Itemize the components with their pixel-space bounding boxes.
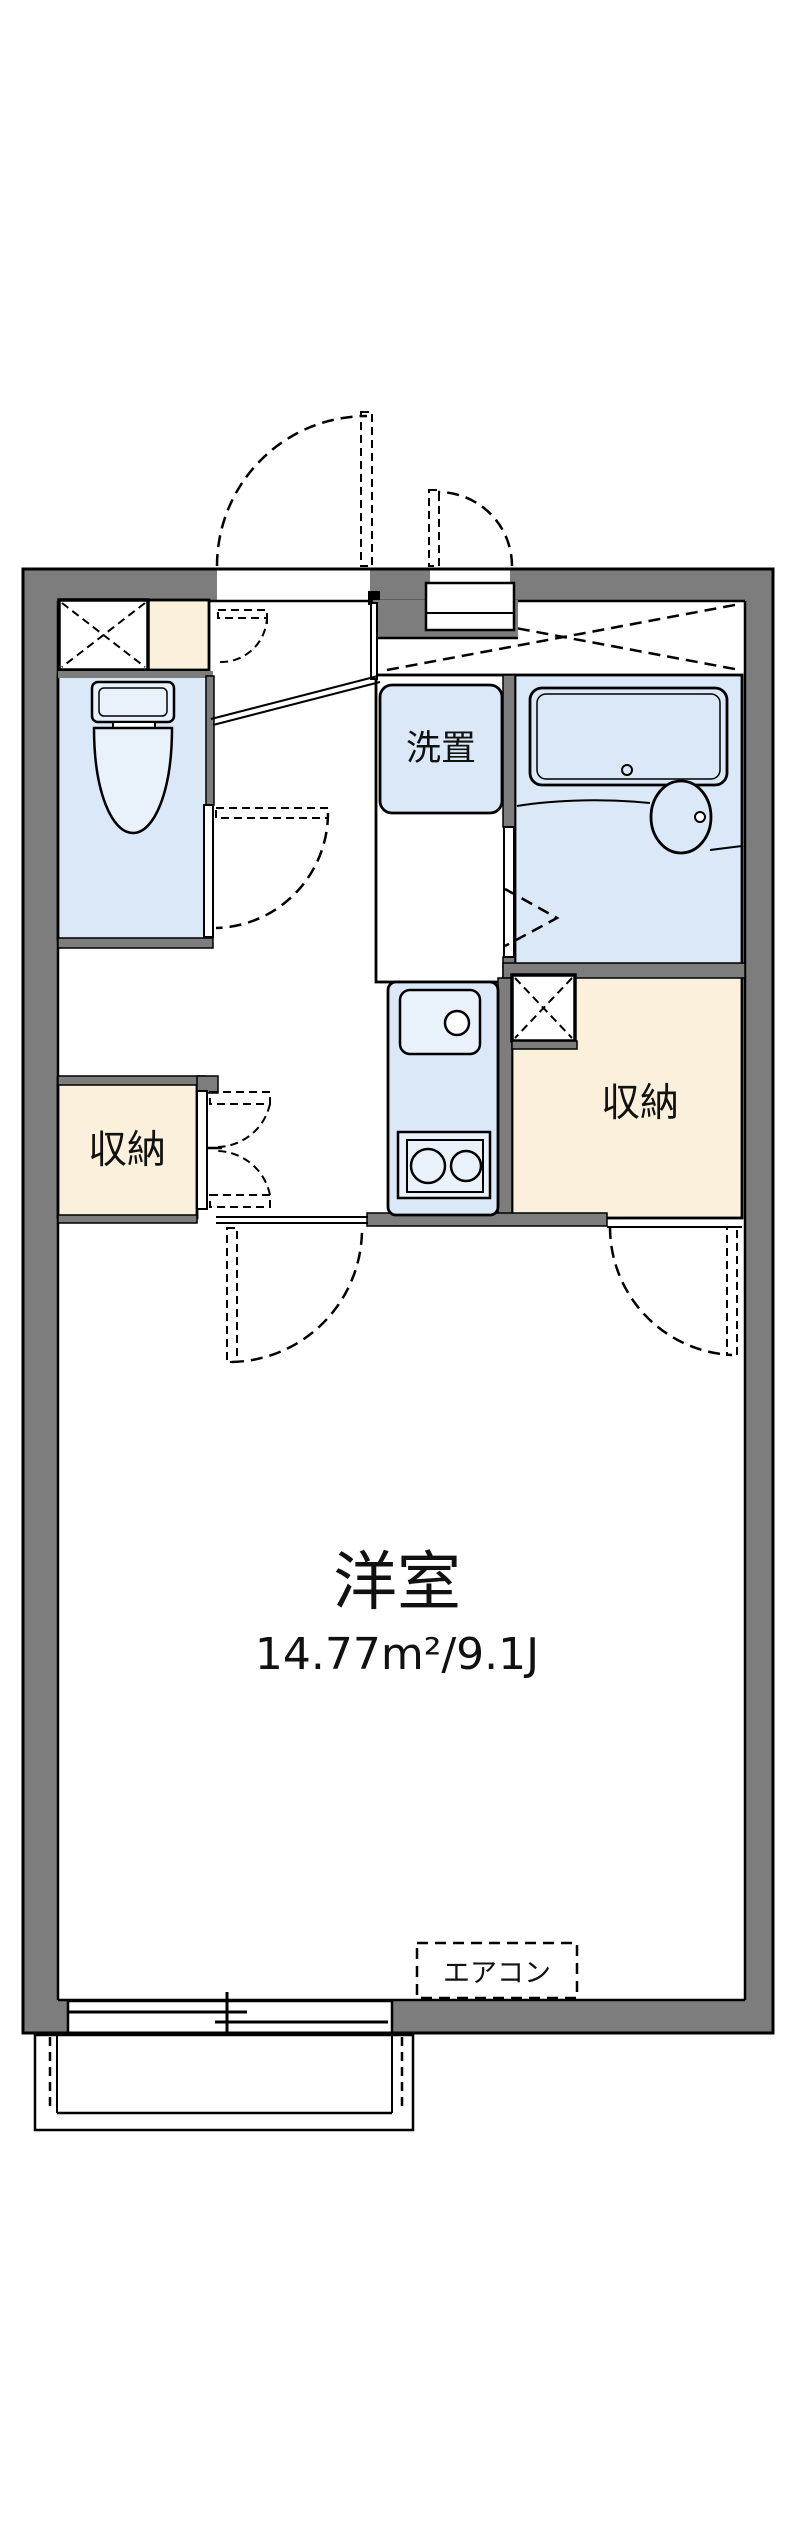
storage-door-panel [197, 1091, 207, 1209]
wall-segment-right [745, 569, 773, 2033]
storage-door-leaf [210, 1195, 270, 1207]
pipe-space-right [512, 975, 577, 1049]
floor-plan-page: 洗置 収納 収納 洋室 14.77m²/9.1J エアコン [0, 0, 800, 2539]
washroom-partition [371, 603, 377, 679]
toilet-door-panel [204, 805, 213, 937]
room-door-swing [232, 1231, 362, 1362]
service-niche-recess [426, 583, 514, 630]
toilet-door [204, 805, 328, 937]
wall-segment [58, 938, 213, 948]
wall-segment [58, 671, 213, 678]
western-room-label: 洋室 [333, 1546, 461, 1620]
room-door-leaf [727, 1227, 737, 1355]
storage-left-label: 収納 [88, 1128, 166, 1173]
service-door-swing [438, 492, 512, 566]
cabinet-door-leaf [218, 610, 267, 618]
aircon-label: エアコン [443, 1958, 551, 1989]
entry-door-swing [217, 416, 367, 566]
wall-segment-left [23, 569, 58, 2033]
floor-plan-drawing: 洗置 収納 収納 洋室 14.77m²/9.1J エアコン [0, 0, 800, 2539]
entry-cabinet-door [218, 610, 267, 662]
wall-segment [58, 1215, 197, 1223]
room-door-right [610, 1227, 737, 1355]
room-door-leaf [227, 1228, 237, 1362]
western-room-area: 14.77m²/9.1J [255, 1629, 539, 1680]
wall-segment [206, 676, 214, 805]
washer-space-label: 洗置 [406, 729, 476, 769]
wall-segment-bottom [392, 2000, 773, 2033]
entry-door [217, 412, 372, 566]
balcony-outline [35, 2035, 413, 2130]
kitchen-faucet [445, 1011, 469, 1035]
entry-step-edge [211, 676, 380, 725]
wall-segment [498, 978, 512, 1218]
kitchen-unit [388, 982, 498, 1215]
wall-segment [58, 1076, 205, 1085]
toilet-door-swing [216, 813, 328, 928]
room-door-left [227, 1228, 362, 1362]
wall-segment [510, 569, 773, 602]
room-door-swing [610, 1227, 732, 1355]
service-door-leaf [429, 490, 439, 566]
storage-left-doors [197, 1091, 270, 1209]
cabinet-door-swing [219, 616, 267, 662]
storage-right-label: 収納 [601, 1081, 679, 1126]
shoe-cabinet [148, 600, 209, 670]
wall-segment-bottom-left [23, 2000, 68, 2033]
service-door [429, 490, 512, 566]
toilet-door-leaf [216, 808, 328, 818]
storage-door-leaf [210, 1092, 270, 1104]
entry-door-leaf [361, 412, 372, 566]
basin-faucet [695, 812, 705, 822]
balcony [35, 2035, 413, 2130]
wall-segment [503, 675, 515, 827]
